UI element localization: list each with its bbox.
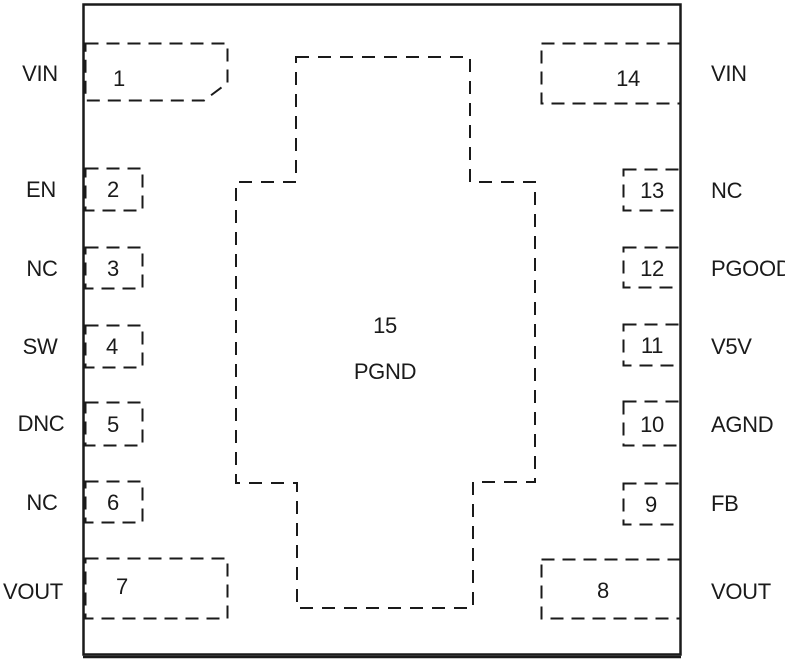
pin-5-label: DNC <box>18 411 65 436</box>
pin-11-number: 11 <box>641 333 663 358</box>
pin-6-number: 6 <box>107 490 119 515</box>
pin-1-pad <box>86 44 228 101</box>
pin-8-label: VOUT <box>711 579 771 604</box>
pin-13-number: 13 <box>640 178 664 203</box>
center-pad-number: 15 <box>373 313 397 338</box>
pin-6-label: NC <box>26 490 58 515</box>
pin-13-label: NC <box>711 178 743 203</box>
pin-7-pad <box>86 559 228 619</box>
pin-1-number: 1 <box>113 66 125 91</box>
pin-12-label: PGOOD <box>711 256 785 281</box>
pin-7-label: VOUT <box>3 579 63 604</box>
pin-10-label: AGND <box>711 412 773 437</box>
pin-7-number: 7 <box>116 574 128 599</box>
pin-8-number: 8 <box>597 578 609 603</box>
pin-12-number: 12 <box>640 256 664 281</box>
pinout-diagram: 1 2 3 4 5 6 7 14 13 12 11 10 9 8 15 PGND… <box>0 0 785 661</box>
pin-11-label: V5V <box>711 334 752 359</box>
pin-4-number: 4 <box>106 334 118 359</box>
pinout-svg: 1 2 3 4 5 6 7 14 13 12 11 10 9 8 15 PGND… <box>0 0 785 661</box>
pin-2-label: EN <box>26 177 56 202</box>
pin-9-number: 9 <box>645 492 657 517</box>
pin-1-label: VIN <box>22 61 58 86</box>
pin-5-number: 5 <box>107 412 119 437</box>
pin-9-label: FB <box>711 491 739 516</box>
pin-8-pad <box>542 560 681 619</box>
pin-10-number: 10 <box>640 412 664 437</box>
pin-14-pad <box>542 44 681 104</box>
center-pad-label: PGND <box>354 359 416 384</box>
pin-4-label: SW <box>23 334 58 359</box>
pin-3-number: 3 <box>107 256 119 281</box>
pin-14-label: VIN <box>711 61 747 86</box>
pin-14-number: 14 <box>616 66 640 91</box>
pin-3-label: NC <box>26 256 58 281</box>
pin-2-number: 2 <box>107 177 119 202</box>
